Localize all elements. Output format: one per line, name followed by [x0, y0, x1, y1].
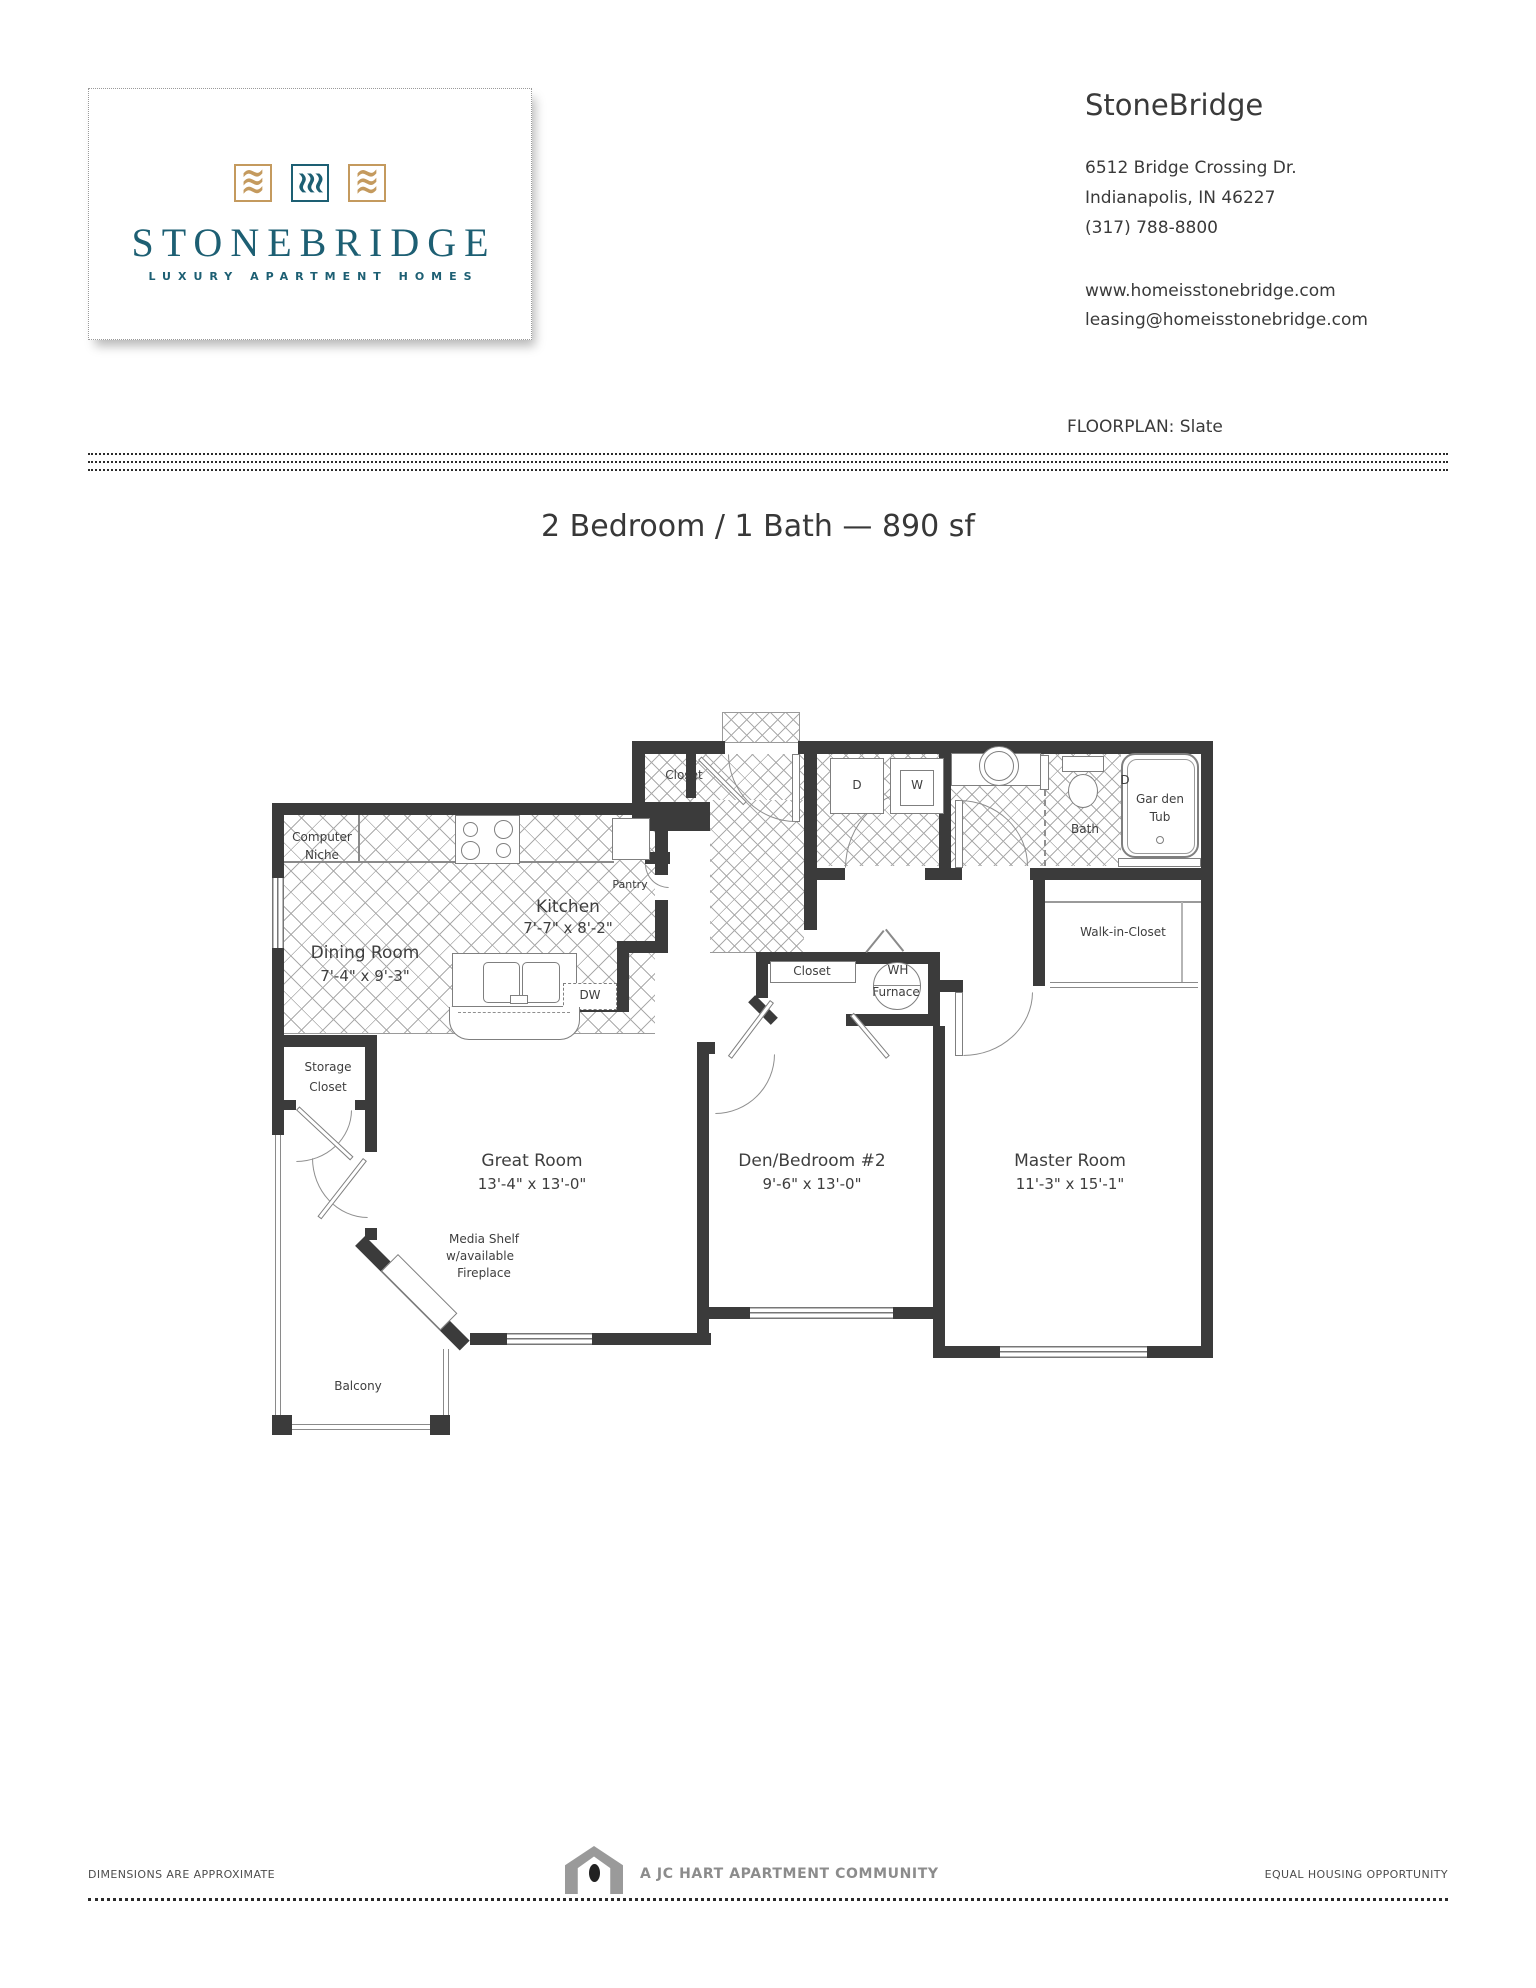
entry-closet-label: Closet — [665, 768, 702, 782]
computer-niche-label: Computer — [292, 830, 352, 844]
garden-tub-label: Tub — [1150, 810, 1171, 824]
closet-sliding-doors — [1050, 982, 1198, 988]
master-door — [955, 992, 963, 1056]
dishwasher-label: DW — [579, 988, 600, 1002]
wall-segment — [1201, 741, 1213, 1358]
balcony-railing — [443, 1349, 449, 1425]
divider-dots — [88, 453, 1448, 455]
wh-label: WH — [888, 963, 909, 977]
wall-segment — [1033, 880, 1045, 986]
closet-rod-line — [1181, 902, 1183, 982]
floorplan-label: FLOORPLAN: Slate — [1067, 417, 1223, 437]
wall-segment — [272, 1035, 377, 1047]
wall-segment — [641, 741, 725, 754]
email: leasing@homeisstonebridge.com — [1085, 310, 1368, 330]
wave-icon: ≋ — [348, 164, 386, 202]
bath-sink — [984, 751, 1014, 781]
wall-segment — [355, 1100, 377, 1110]
property-name: StoneBridge — [1085, 88, 1263, 122]
den-dims: 9'-6" x 13'-0" — [762, 1175, 861, 1193]
garden-tub-label: Gar den — [1136, 792, 1184, 806]
logo-squares: ≋ ≋ ≋ — [89, 164, 531, 202]
logo-tagline: LUXURY APARTMENT HOMES — [89, 270, 531, 283]
burner — [494, 820, 513, 839]
wave-icon: ≋ — [291, 164, 329, 202]
address-line1: 6512 Bridge Crossing Dr. — [1085, 158, 1297, 178]
wall-segment — [925, 868, 962, 880]
dryer-label: D — [852, 778, 861, 792]
tub-drain — [1156, 836, 1164, 844]
jchart-house-icon — [565, 1846, 623, 1894]
balcony-label: Balcony — [334, 1379, 382, 1393]
computer-niche-label: Niche — [305, 848, 339, 862]
window — [272, 878, 284, 948]
pocket-door — [1040, 755, 1049, 790]
address-line2: Indianapolis, IN 46227 — [1085, 188, 1275, 208]
media-shelf-label: w/available — [446, 1249, 514, 1263]
wall-segment — [697, 1042, 709, 1345]
great-room-label: Great Room — [481, 1151, 582, 1171]
burner — [463, 822, 478, 837]
media-shelf-label: Media Shelf — [449, 1232, 519, 1246]
refrigerator — [612, 818, 650, 860]
wall-segment — [817, 868, 845, 880]
eho-label: EQUAL HOUSING OPPORTUNITY — [1265, 1868, 1448, 1881]
master-room-label: Master Room — [1014, 1151, 1126, 1171]
flyer-page: ≋ ≋ ≋ STONEBRIDGE LUXURY APARTMENT HOMES… — [0, 0, 1536, 1988]
counter-overhang — [458, 1012, 570, 1013]
wave-icon: ≋ — [240, 164, 265, 202]
furnace-label: Furnace — [872, 985, 920, 999]
wave-icon: ≋ — [354, 164, 379, 202]
dining-room-dims: 7'-4" x 9'-3" — [320, 967, 409, 985]
storage-closet-label: Storage — [305, 1060, 352, 1074]
closet-shelf-line — [1045, 901, 1201, 903]
page-title: 2 Bedroom / 1 Bath — 890 sf — [541, 509, 975, 544]
window — [507, 1333, 592, 1345]
wave-icon: ≋ — [291, 170, 329, 195]
wall-segment — [272, 803, 655, 815]
wall-segment — [272, 1100, 296, 1110]
house-door — [589, 1864, 600, 1882]
logo-wordmark: STONEBRIDGE — [89, 219, 531, 266]
pocket-door-track — [1044, 790, 1046, 866]
wave-icon: ≋ — [234, 164, 272, 202]
window — [750, 1307, 893, 1319]
dryer-label: D — [1120, 773, 1129, 787]
media-shelf-label: Fireplace — [457, 1266, 511, 1280]
window — [1000, 1346, 1147, 1358]
kitchen-dims: 7'-7" x 8'-2" — [523, 919, 612, 937]
storage-closet-label: Closet — [309, 1080, 346, 1094]
washer-label: W — [911, 778, 923, 792]
balcony-post — [272, 1415, 292, 1435]
dimensions-note: DIMENSIONS ARE APPROXIMATE — [88, 1868, 275, 1881]
entry-hall-floor — [710, 800, 804, 953]
den-closet-label: Closet — [793, 964, 830, 978]
door-arc — [963, 992, 1033, 1056]
kitchen-label: Kitchen — [536, 897, 600, 917]
door-arc — [715, 1054, 775, 1114]
bifold-door — [865, 930, 884, 953]
media-shelf — [381, 1254, 457, 1330]
den-label: Den/Bedroom #2 — [738, 1151, 885, 1171]
toilet-bowl — [1068, 774, 1098, 808]
tub-ledge — [1118, 858, 1201, 867]
bath-label: Bath — [1071, 822, 1099, 836]
footer-dots — [88, 1898, 1448, 1901]
dining-room-label: Dining Room — [311, 943, 420, 963]
wall-segment — [272, 803, 284, 1135]
wall-segment — [939, 980, 963, 992]
burner — [496, 843, 511, 858]
logo-card: ≋ ≋ ≋ STONEBRIDGE LUXURY APARTMENT HOMES — [88, 88, 532, 340]
wall-segment — [928, 952, 940, 1026]
community-label: A JC HART APARTMENT COMMUNITY — [640, 1866, 939, 1882]
burner — [461, 841, 480, 860]
wall-segment — [756, 952, 768, 998]
phone: (317) 788-8800 — [1085, 218, 1218, 238]
balcony-post — [430, 1415, 450, 1435]
balcony-railing — [275, 1135, 281, 1417]
wall-segment — [1030, 868, 1213, 880]
entry-stoop — [722, 712, 800, 743]
floor-plan: Computer Niche Dining Room 7'-4" x 9'-3"… — [262, 698, 1214, 1443]
bifold-door — [885, 929, 904, 952]
counter-edge — [358, 815, 360, 862]
walk-in-closet-label: Walk-in-Closet — [1080, 925, 1166, 939]
master-room-dims: 11'-3" x 15'-1" — [1016, 1175, 1125, 1193]
great-room-dims: 13'-4" x 13'-0" — [478, 1175, 587, 1193]
divider-dots — [88, 461, 1448, 463]
website: www.homeisstonebridge.com — [1085, 281, 1336, 301]
wall-segment — [804, 754, 817, 930]
toilet-tank — [1062, 756, 1104, 772]
divider-dots — [88, 469, 1448, 471]
pantry-label: Pantry — [612, 878, 647, 891]
closet-door — [728, 1000, 774, 1059]
balcony-railing — [290, 1424, 432, 1430]
faucet — [510, 995, 528, 1004]
